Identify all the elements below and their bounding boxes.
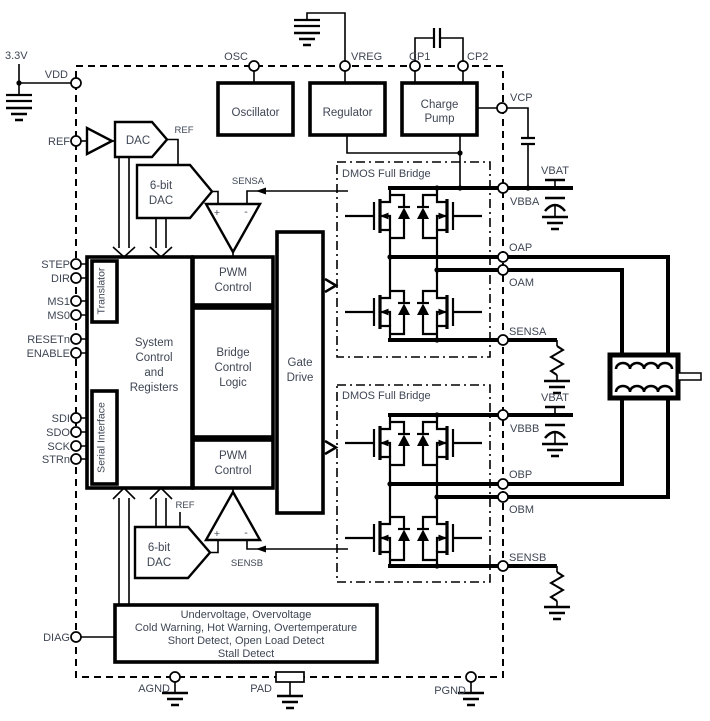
bridge-logic-label-3: Logic [219, 377, 247, 389]
pad-label: PAD [250, 683, 272, 695]
regulator-label: Regulator [323, 107, 373, 119]
bridge-logic-label-2: Control [214, 362, 251, 374]
obp-label: OBP [509, 469, 532, 481]
sensa-pin-label: SENSA [509, 326, 547, 338]
pwm-bottom-label-2: Control [214, 465, 251, 477]
dir-label: DIR [51, 273, 70, 285]
fault-label-3: Short Detect, Open Load Detect [168, 635, 325, 647]
vbba-label: VBBA [510, 196, 540, 208]
gate-drive-label-2: Drive [287, 372, 314, 384]
pin-vbbb [498, 410, 508, 420]
ref-label: REF [48, 136, 70, 148]
sdo-label: SDO [46, 427, 70, 439]
sense-resistors [551, 346, 563, 601]
vreg-label: VREG [351, 51, 382, 63]
pin-vdd [71, 78, 81, 88]
obm-label: OBM [509, 504, 534, 516]
charge-pump-label-1: Charge [421, 99, 459, 111]
block-diagram: 3.3V VDD REF STEP DIR MS1 MS0 RESETn ENA… [0, 0, 710, 721]
vdd-label: VDD [45, 69, 68, 81]
translator-label: Translator [96, 267, 108, 314]
vbat-a-label: VBAT [541, 165, 569, 177]
serial-interface-label: Serial Interface [96, 402, 108, 473]
pin-resetn [71, 334, 81, 344]
sdi-label: SDI [52, 413, 70, 425]
comp-b-plus: + [214, 528, 220, 540]
cp1-label: CP1 [409, 51, 430, 63]
dac6-bottom-label-2: DAC [147, 557, 171, 569]
stepper-motor [610, 355, 701, 398]
bridge-logic-label-1: Bridge [216, 347, 249, 359]
motor-shaft [678, 373, 701, 380]
pin-obm [498, 492, 508, 502]
pin-ms1 [71, 296, 81, 306]
system-control-label-4: Registers [130, 382, 179, 394]
ms0-label: MS0 [47, 310, 70, 322]
pin-vbba [498, 183, 508, 193]
vbat-b-label: VBAT [541, 392, 569, 404]
ms1-label: MS1 [47, 296, 70, 308]
pin-enable [71, 348, 81, 358]
bridge-b-label: DMOS Full Bridge [342, 390, 431, 402]
vbbb-label: VBBB [510, 423, 539, 435]
pwm-control-bottom-block [193, 440, 273, 488]
dmos-bridge-a-fets [345, 188, 482, 340]
dac6-bottom-label-1: 6-bit [148, 542, 171, 554]
pin-ref [71, 136, 81, 146]
diag-label: DIAG [43, 632, 70, 644]
gate-drive-label-1: Gate [288, 357, 313, 369]
pin-sensb [498, 561, 508, 571]
sensa-signal-label: SENSA [232, 176, 265, 187]
pin-diag [71, 632, 81, 642]
supply-3v3-label: 3.3V [5, 50, 28, 62]
dac6-top-block [137, 165, 212, 218]
pin-oap [498, 252, 508, 262]
pin-obp [498, 479, 508, 489]
sensb-signal-label: SENSB [231, 558, 263, 569]
pwm-control-top-block [193, 257, 273, 305]
pin-strn [71, 454, 81, 464]
dac6-bottom-block [135, 527, 210, 578]
pin-dir [71, 273, 81, 283]
pin-sck [71, 441, 81, 451]
dmos-bridge-b-fets [345, 415, 482, 566]
pin-sdi [71, 413, 81, 423]
dac6-top-label-2: DAC [149, 195, 173, 207]
pwm-top-label-2: Control [214, 282, 251, 294]
enable-label: ENABLE [27, 348, 70, 360]
pin-agnd [170, 672, 180, 682]
pin-osc [249, 61, 259, 71]
step-label: STEP [41, 259, 70, 271]
fault-label-4: Stall Detect [218, 648, 274, 660]
system-control-label-1: System [135, 337, 173, 349]
dac6-top-label-1: 6-bit [150, 180, 173, 192]
cp2-label: CP2 [467, 51, 488, 63]
comp-b-minus: - [244, 527, 248, 539]
dmos-bridge-a-box [337, 162, 490, 357]
system-control-label-3: and [144, 367, 163, 379]
fault-label-2: Cold Warning, Hot Warning, Overtemperatu… [135, 622, 357, 634]
osc-label: OSC [224, 51, 248, 63]
comp-a-plus: + [214, 207, 220, 219]
fault-label-1: Undervoltage, Overvoltage [181, 609, 312, 621]
schematic-canvas: 3.3V VDD REF STEP DIR MS1 MS0 RESETn ENA… [0, 0, 710, 721]
pin-ms0 [71, 310, 81, 320]
pwm-top-label-1: PWM [219, 267, 247, 279]
pin-vreg [340, 61, 350, 71]
pin-sdo [71, 427, 81, 437]
pgnd-label: PGND [434, 685, 466, 697]
pin-pgnd [466, 672, 476, 682]
comp-a-minus: - [244, 206, 248, 218]
pin-sensa [498, 335, 508, 345]
sensb-pin-label: SENSB [509, 552, 546, 564]
ref-signal-bottom-label: REF [176, 500, 195, 511]
oap-label: OAP [509, 242, 532, 254]
oscillator-label: Oscillator [232, 107, 280, 119]
system-control-label-2: Control [135, 352, 172, 364]
pin-step [71, 259, 81, 269]
dac-label: DAC [126, 135, 150, 147]
agnd-label: AGND [138, 683, 170, 695]
strn-label: STRn [42, 454, 70, 466]
pad-terminal [276, 672, 304, 682]
resetn-label: RESETn [27, 334, 70, 346]
pwm-bottom-label-1: PWM [219, 450, 247, 462]
vcp-label: VCP [510, 92, 533, 104]
charge-pump-label-2: Pump [424, 113, 454, 125]
oam-label: OAM [509, 277, 534, 289]
ref-buffer-amp [87, 128, 112, 154]
sck-label: SCK [47, 441, 70, 453]
ref-signal-top-label: REF [175, 125, 194, 136]
bridge-a-label: DMOS Full Bridge [342, 168, 431, 180]
pin-oam [498, 265, 508, 275]
pin-vcp [497, 103, 507, 113]
